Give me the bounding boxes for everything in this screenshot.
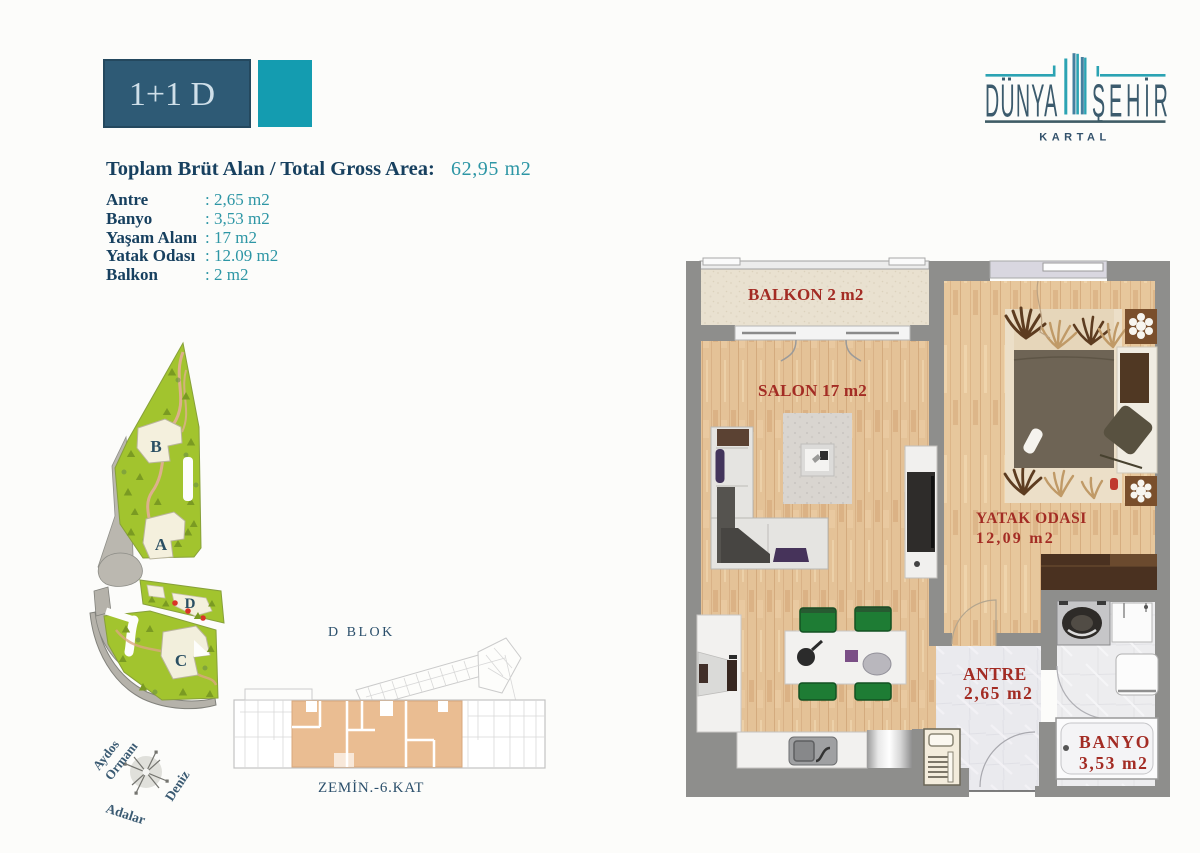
svg-text:C: C xyxy=(175,651,187,670)
svg-text:: 12.09 m2: : 12.09 m2 xyxy=(205,246,278,265)
svg-text:A: A xyxy=(155,535,168,554)
svg-text:D BLOK: D BLOK xyxy=(328,625,395,640)
svg-text:: 2,65 m2: : 2,65 m2 xyxy=(205,190,270,209)
svg-text:BANYO: BANYO xyxy=(1079,732,1151,752)
svg-text:SEHIR: SEHIR xyxy=(1092,75,1172,127)
svg-text:BALKON 2 m2: BALKON 2 m2 xyxy=(748,285,864,304)
svg-text:YATAK ODASI: YATAK ODASI xyxy=(976,510,1087,527)
svg-text:SALON 17 m2: SALON 17 m2 xyxy=(758,381,867,400)
svg-text:Antre: Antre xyxy=(106,190,149,209)
svg-text:: 2 m2: : 2 m2 xyxy=(205,265,248,284)
svg-text:Yatak Odası: Yatak Odası xyxy=(106,246,196,265)
svg-text:62,95 m2: 62,95 m2 xyxy=(451,158,531,180)
svg-text:3,53 m2: 3,53 m2 xyxy=(1079,753,1149,773)
svg-text:Balkon: Balkon xyxy=(106,265,159,284)
svg-text:12,09 m2: 12,09 m2 xyxy=(976,530,1055,547)
svg-text:: 3,53 m2: : 3,53 m2 xyxy=(205,209,270,228)
svg-text:2,65 m2: 2,65 m2 xyxy=(964,683,1034,703)
svg-text:ZEMİN.-6.KAT: ZEMİN.-6.KAT xyxy=(318,780,424,796)
svg-text:Toplam Brüt Alan / Total Gross: Toplam Brüt Alan / Total Gross Area: xyxy=(106,158,435,180)
svg-text:ANTRE: ANTRE xyxy=(963,664,1027,684)
svg-text:Banyo: Banyo xyxy=(106,209,152,228)
svg-text:Deniz: Deniz xyxy=(162,768,193,804)
svg-text:Yaşam Alanı: Yaşam Alanı xyxy=(106,228,197,247)
svg-text:Adalar: Adalar xyxy=(104,801,147,828)
svg-text:1+1 D: 1+1 D xyxy=(129,76,215,113)
svg-text:DUNYA: DUNYA xyxy=(985,75,1059,127)
svg-text:B: B xyxy=(150,437,161,456)
svg-text:: 17 m2: : 17 m2 xyxy=(205,228,257,247)
svg-text:KARTAL: KARTAL xyxy=(1039,132,1110,144)
